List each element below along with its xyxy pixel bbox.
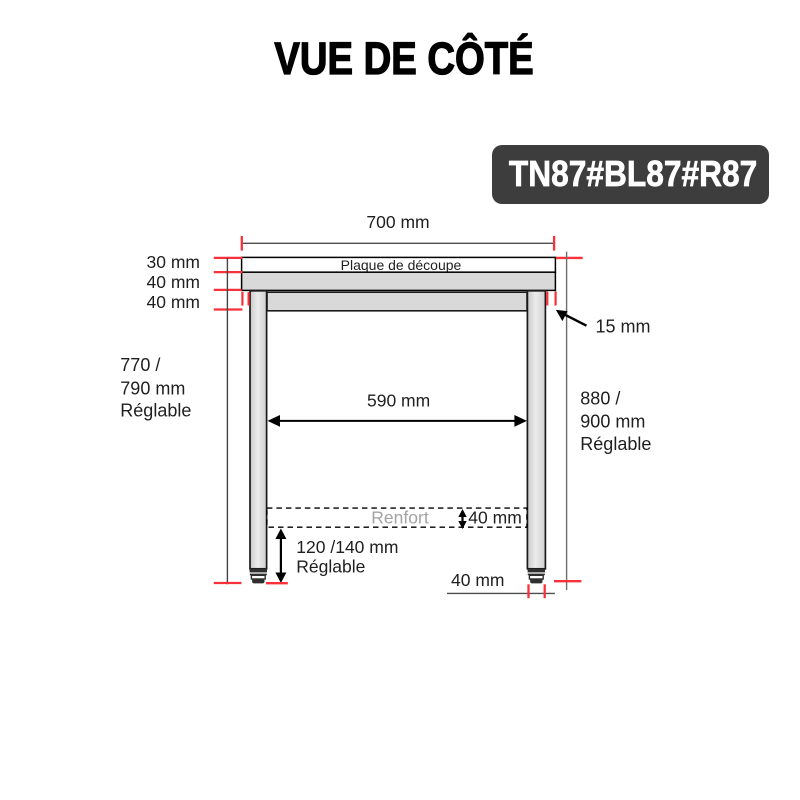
svg-text:Plaque de découpe: Plaque de découpe: [341, 257, 462, 273]
svg-text:40 mm: 40 mm: [147, 272, 200, 292]
svg-text:40 mm: 40 mm: [451, 570, 504, 590]
svg-text:Réglable: Réglable: [120, 401, 191, 421]
svg-text:15 mm: 15 mm: [596, 316, 651, 336]
svg-text:120 /140 mm: 120 /140 mm: [296, 537, 398, 557]
svg-text:Réglable: Réglable: [296, 556, 365, 576]
svg-text:900 mm: 900 mm: [580, 412, 645, 432]
svg-text:Renfort: Renfort: [371, 507, 429, 527]
svg-text:880 /: 880 /: [580, 388, 620, 408]
svg-text:30 mm: 30 mm: [147, 252, 200, 272]
svg-text:40 mm: 40 mm: [147, 292, 200, 312]
svg-text:Réglable: Réglable: [580, 434, 651, 454]
svg-text:770 /: 770 /: [120, 355, 160, 375]
svg-text:590 mm: 590 mm: [367, 391, 430, 411]
svg-text:700 mm: 700 mm: [366, 212, 429, 232]
svg-text:790 mm: 790 mm: [120, 378, 185, 398]
svg-text:40 mm: 40 mm: [468, 507, 521, 527]
